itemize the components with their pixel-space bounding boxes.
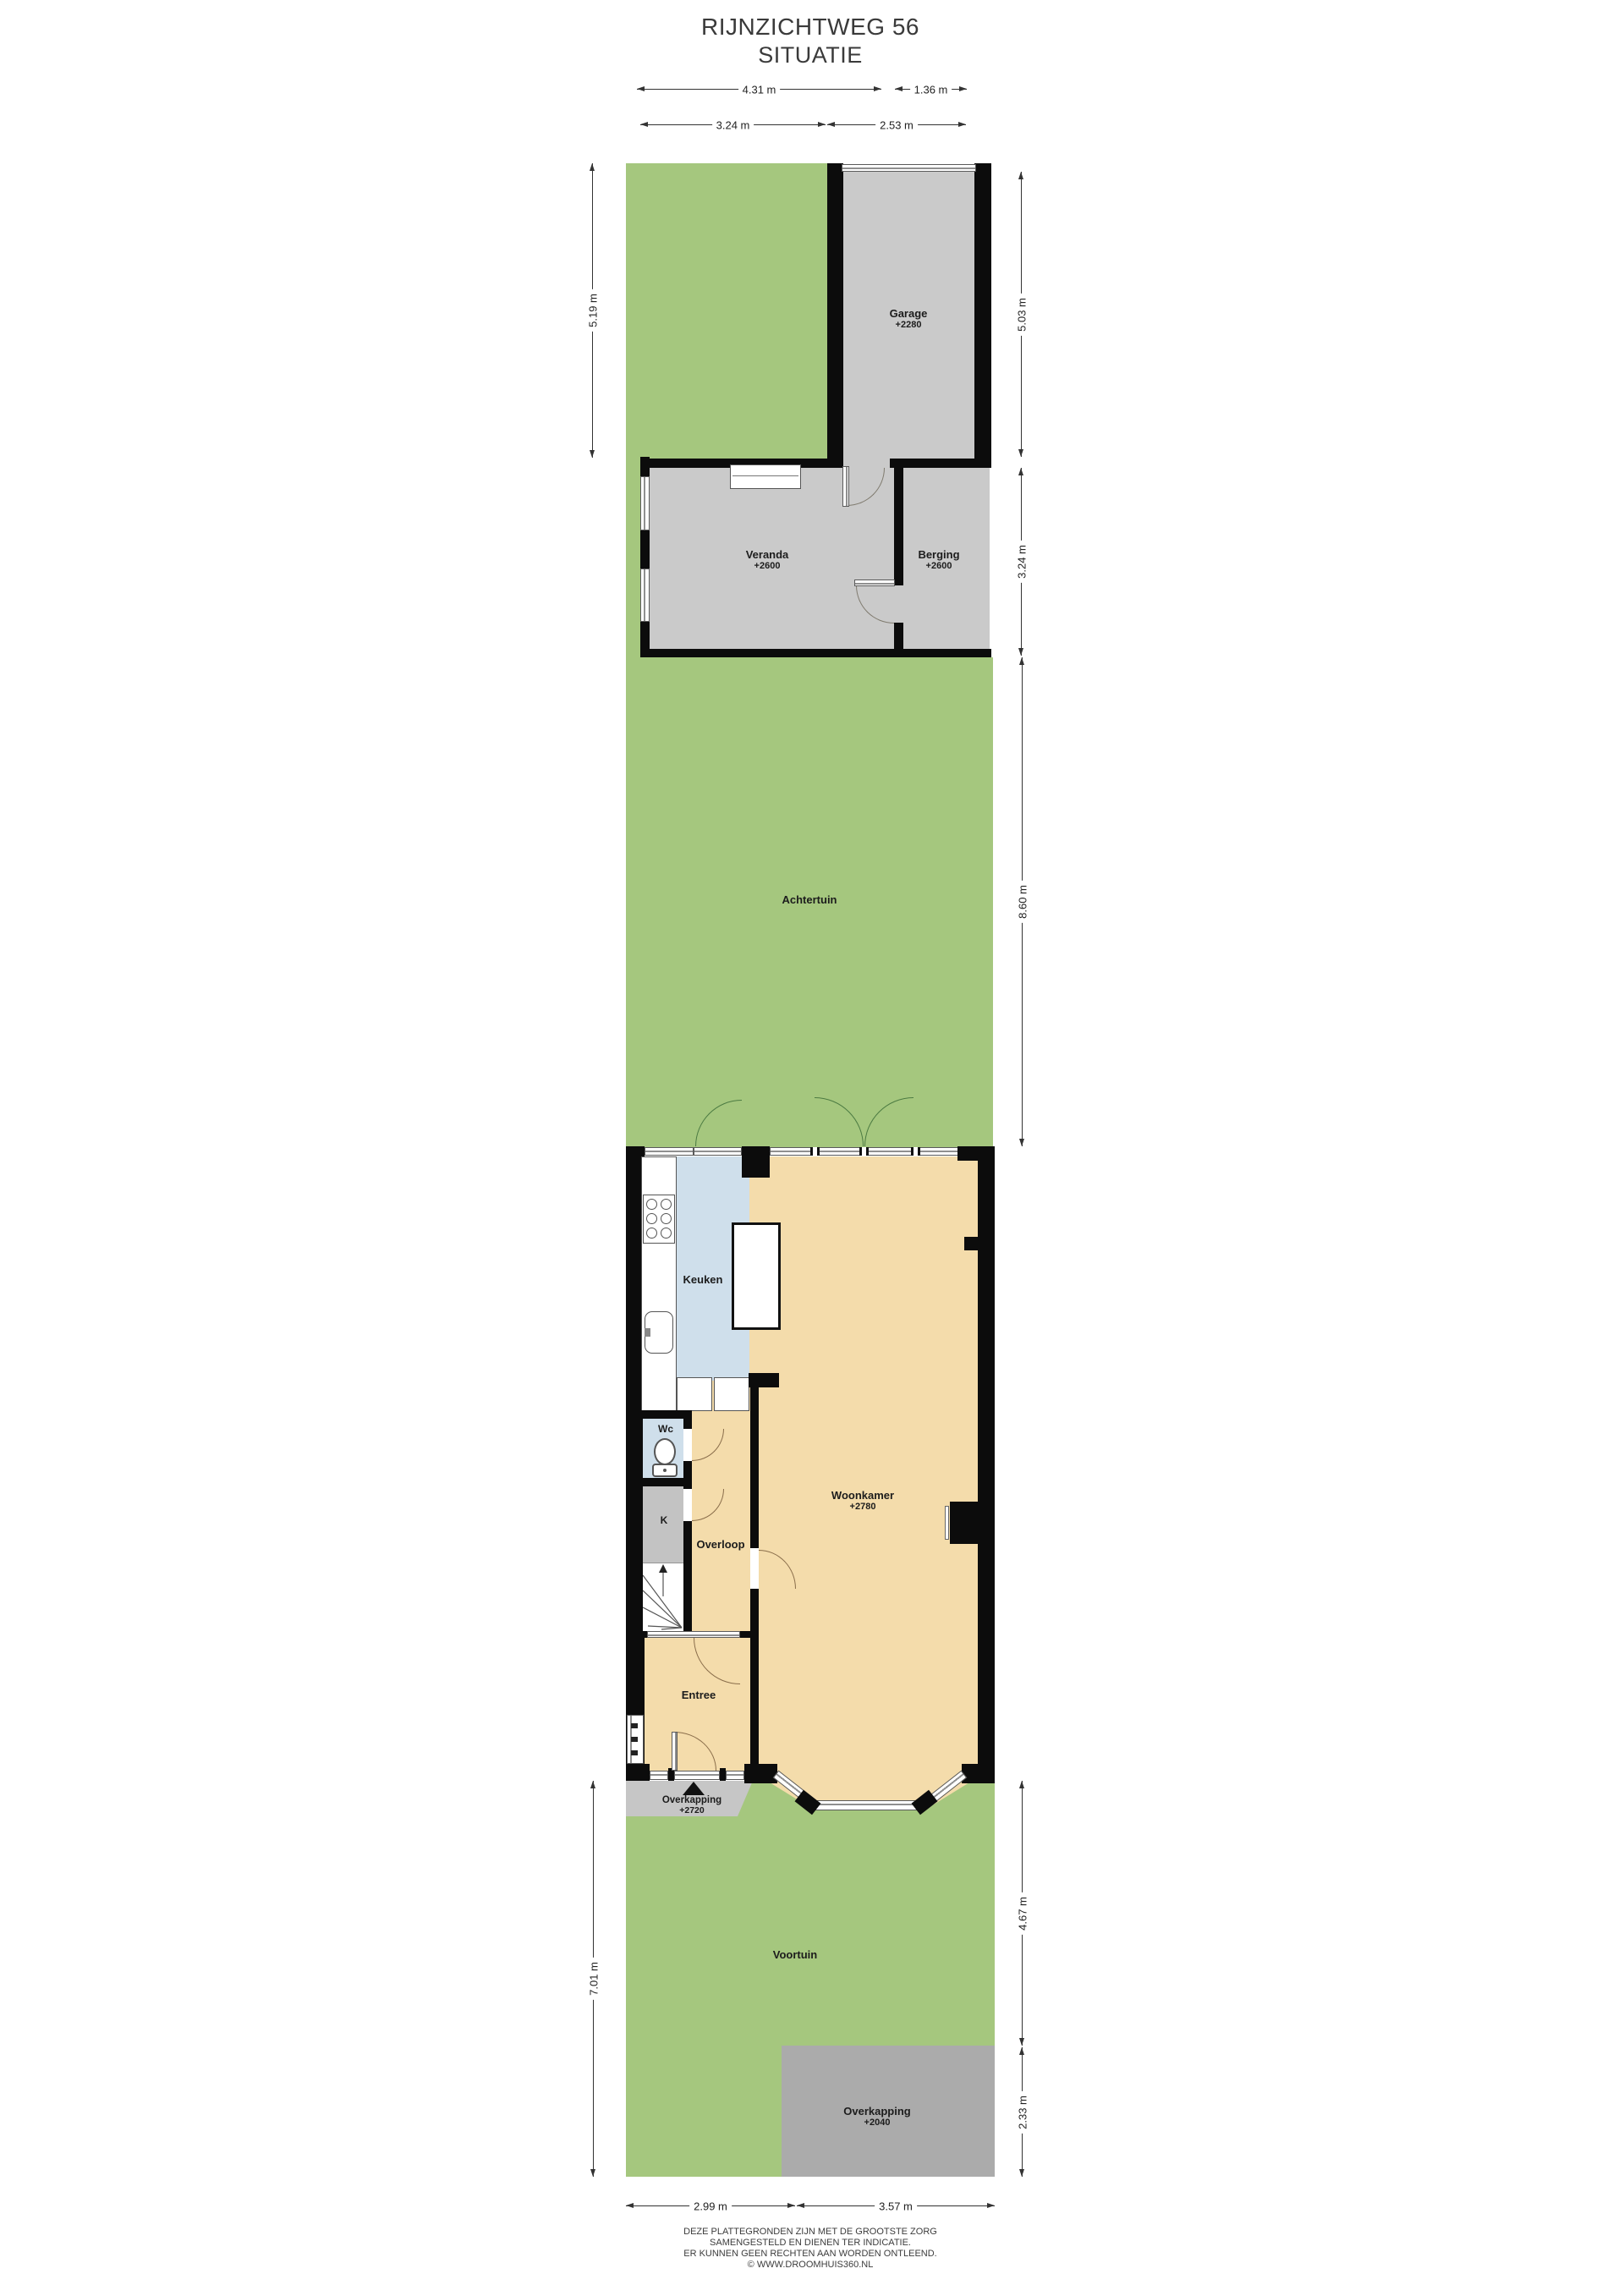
veranda-label: Veranda +2600 bbox=[746, 548, 789, 571]
canopy-drive-label: Overkapping +2040 bbox=[843, 2105, 910, 2128]
burner-icon bbox=[646, 1213, 657, 1224]
wall bbox=[890, 459, 990, 468]
window bbox=[640, 569, 650, 622]
sideboard-line bbox=[732, 475, 798, 476]
canopy-entree-label: Overkapping +2720 bbox=[662, 1795, 721, 1815]
window bbox=[650, 1771, 668, 1780]
disclaimer-line: © WWW.DROOMHUIS360.NL bbox=[592, 2260, 1029, 2271]
door-opening bbox=[750, 1548, 759, 1589]
kitchen-island bbox=[732, 1222, 781, 1330]
woonkamer-label: Woonkamer +2780 bbox=[831, 1489, 894, 1512]
floorplan-page: RIJNZICHTWEG 56 SITUATIE Garage +2280 Ve… bbox=[0, 0, 1624, 2296]
page-title: RIJNZICHTWEG 56 SITUATIE bbox=[592, 14, 1029, 69]
wall-pier bbox=[742, 1146, 770, 1178]
wall bbox=[750, 1589, 759, 1771]
dimension: 2.53 m bbox=[827, 124, 966, 125]
kitchen-cabinet bbox=[714, 1377, 749, 1411]
wall bbox=[640, 649, 991, 657]
dimension: 3.24 m bbox=[640, 124, 826, 125]
dimension: 5.19 m bbox=[592, 163, 593, 458]
disclaimer-line: SAMENGESTELD EN DIENEN TER INDICATIE. bbox=[592, 2238, 1029, 2249]
wall bbox=[894, 623, 903, 649]
garage-label: Garage +2280 bbox=[890, 307, 928, 330]
toilet-dot bbox=[663, 1469, 667, 1472]
front-door bbox=[674, 1771, 720, 1780]
overloop-label: Overloop bbox=[696, 1538, 744, 1551]
keuken-label: Keuken bbox=[683, 1273, 723, 1286]
wall bbox=[640, 457, 650, 478]
dimension: 1.36 m bbox=[895, 89, 967, 90]
door-leaf bbox=[854, 579, 895, 586]
wall bbox=[978, 1146, 995, 1782]
window bbox=[726, 1771, 744, 1780]
garage-door bbox=[842, 164, 976, 172]
garden-back-upper bbox=[626, 163, 827, 459]
voortuin-label: Voortuin bbox=[773, 1948, 817, 1961]
bay-corner bbox=[744, 1764, 777, 1783]
bay-corner bbox=[962, 1764, 995, 1783]
meter-tick bbox=[631, 1750, 638, 1755]
window bbox=[647, 1631, 740, 1638]
dimension: 8.60 m bbox=[1022, 657, 1023, 1146]
window bbox=[640, 476, 650, 530]
wall bbox=[827, 163, 843, 468]
garden-side-strip bbox=[626, 459, 640, 657]
wc-label: Wc bbox=[658, 1423, 673, 1435]
dimension: 7.01 m bbox=[593, 1781, 594, 2177]
berging-label: Berging +2600 bbox=[918, 548, 959, 571]
door-leaf bbox=[842, 466, 849, 507]
burner-icon bbox=[646, 1228, 657, 1239]
meter-tick bbox=[631, 1737, 638, 1742]
wall bbox=[957, 1146, 978, 1161]
door-post bbox=[859, 1147, 869, 1156]
door-leaf bbox=[672, 1732, 678, 1771]
wall bbox=[626, 1410, 692, 1419]
meter-tick bbox=[631, 1723, 638, 1728]
dimension: 4.67 m bbox=[1022, 1781, 1023, 2046]
kitchen-cabinet bbox=[677, 1377, 712, 1411]
achtertuin-label: Achtertuin bbox=[782, 893, 837, 906]
dimension: 4.31 m bbox=[637, 89, 881, 90]
sink-tap bbox=[645, 1328, 650, 1337]
plan-subtitle: SITUATIE bbox=[592, 42, 1029, 69]
disclaimer: DEZE PLATTEGRONDEN ZIJN MET DE GROOTSTE … bbox=[592, 2227, 1029, 2271]
garden-door bbox=[694, 1147, 742, 1156]
wall bbox=[749, 1373, 779, 1387]
burner-icon bbox=[661, 1199, 672, 1210]
wall bbox=[626, 1478, 692, 1486]
door-opening bbox=[683, 1489, 692, 1521]
entrance-marker bbox=[683, 1782, 705, 1795]
sideboard bbox=[730, 464, 801, 489]
chimney-step bbox=[964, 1237, 979, 1250]
wall bbox=[974, 163, 991, 468]
wall bbox=[626, 1764, 650, 1781]
door-opening bbox=[683, 1429, 692, 1461]
disclaimer-line: DEZE PLATTEGRONDEN ZIJN MET DE GROOTSTE … bbox=[592, 2227, 1029, 2238]
door-jamb bbox=[720, 1768, 726, 1782]
entree-label: Entree bbox=[682, 1689, 716, 1701]
wall bbox=[640, 530, 650, 569]
closet-label: K bbox=[661, 1514, 668, 1526]
dimension: 5.03 m bbox=[1021, 172, 1022, 457]
toilet-icon bbox=[654, 1438, 676, 1465]
burner-icon bbox=[646, 1199, 657, 1210]
stairs-icon bbox=[643, 1563, 683, 1631]
address-title: RIJNZICHTWEG 56 bbox=[592, 14, 1029, 41]
dimension: 2.33 m bbox=[1022, 2047, 1023, 2177]
dimension: 2.99 m bbox=[626, 2205, 795, 2206]
dimension: 3.57 m bbox=[797, 2205, 995, 2206]
wall bbox=[750, 1387, 759, 1548]
fireplace bbox=[950, 1502, 978, 1544]
burner-icon bbox=[661, 1228, 672, 1239]
dimension: 3.24 m bbox=[1021, 468, 1022, 656]
burner-icon bbox=[661, 1213, 672, 1224]
door-post bbox=[911, 1147, 920, 1156]
window bbox=[770, 1147, 973, 1156]
tv-strip bbox=[945, 1506, 949, 1540]
bay-window-front bbox=[815, 1800, 918, 1810]
door-post bbox=[810, 1147, 820, 1156]
disclaimer-line: ER KUNNEN GEEN RECHTEN AAN WORDEN ONTLEE… bbox=[592, 2249, 1029, 2260]
window bbox=[645, 1147, 694, 1156]
wall bbox=[894, 468, 903, 585]
